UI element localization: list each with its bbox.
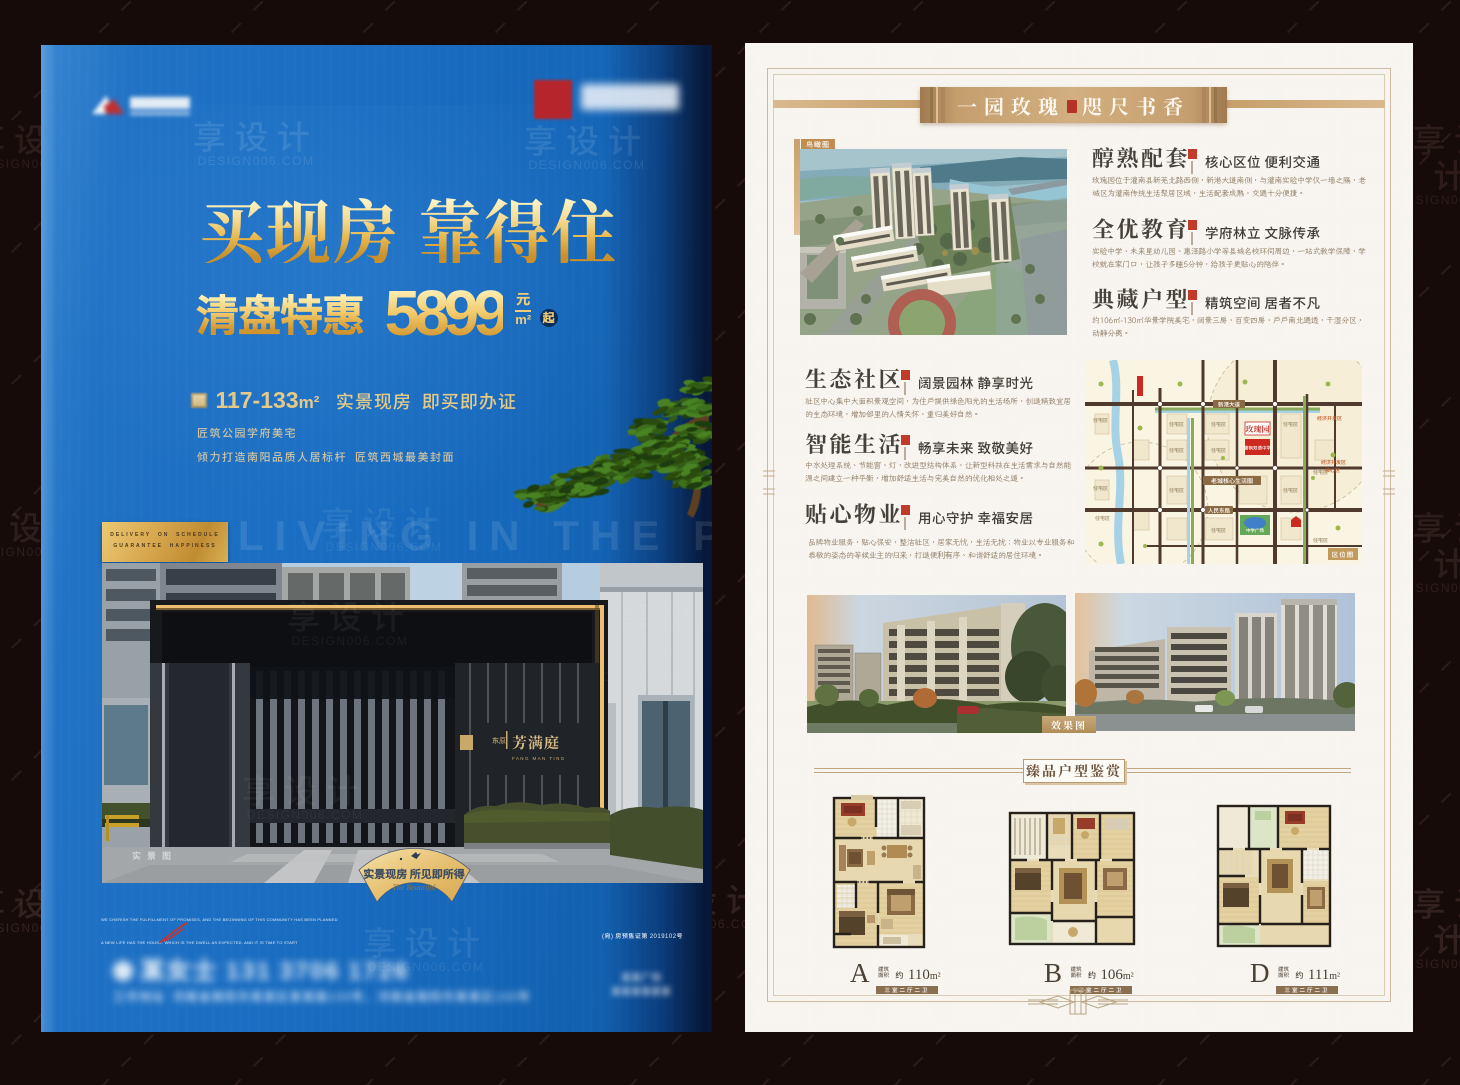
svg-text:住宅区: 住宅区 (1169, 487, 1184, 494)
svg-text:实景现房 所见即所得: 实景现房 所见即所得 (363, 866, 464, 882)
svg-text:The Beautiful: The Beautiful (392, 883, 436, 892)
svg-text:核心区: 核心区 (1325, 467, 1340, 474)
svg-text:老城核心生活圈: 老城核心生活圈 (1211, 476, 1253, 485)
svg-text:区位图: 区位图 (1332, 549, 1355, 559)
svg-text:芳满庭: 芳满庭 (512, 732, 560, 753)
svg-text:住宅区: 住宅区 (1283, 421, 1298, 428)
svg-text:住宅区: 住宅区 (1093, 417, 1108, 424)
svg-text:人民东路: 人民东路 (1208, 507, 1231, 515)
svg-text:住宅区: 住宅区 (1093, 485, 1108, 492)
svg-text:雪枫双语中学: 雪枫双语中学 (1244, 446, 1271, 452)
svg-text:住宅区: 住宅区 (1169, 421, 1184, 428)
svg-text:住宅区: 住宅区 (1169, 447, 1184, 454)
svg-text:住宅区: 住宅区 (1283, 487, 1298, 494)
svg-text:住宅区: 住宅区 (1211, 421, 1226, 428)
svg-text:东原: 东原 (492, 736, 506, 746)
svg-text:中学广场: 中学广场 (1246, 528, 1264, 534)
svg-text:经济开发区: 经济开发区 (1317, 415, 1342, 422)
svg-text:住宅区: 住宅区 (1095, 515, 1110, 522)
svg-text:FANG MAN TING: FANG MAN TING (512, 756, 566, 761)
svg-text:住宅区: 住宅区 (1211, 447, 1226, 454)
svg-text:实景图: 实景图 (132, 849, 177, 862)
svg-text:经济开发区: 经济开发区 (1321, 459, 1346, 466)
svg-text:住宅区: 住宅区 (1211, 527, 1226, 534)
svg-text:新港大道: 新港大道 (1218, 401, 1241, 409)
svg-text:玫瑰园: 玫瑰园 (1246, 424, 1270, 435)
svg-text:住宅区: 住宅区 (1313, 537, 1328, 544)
